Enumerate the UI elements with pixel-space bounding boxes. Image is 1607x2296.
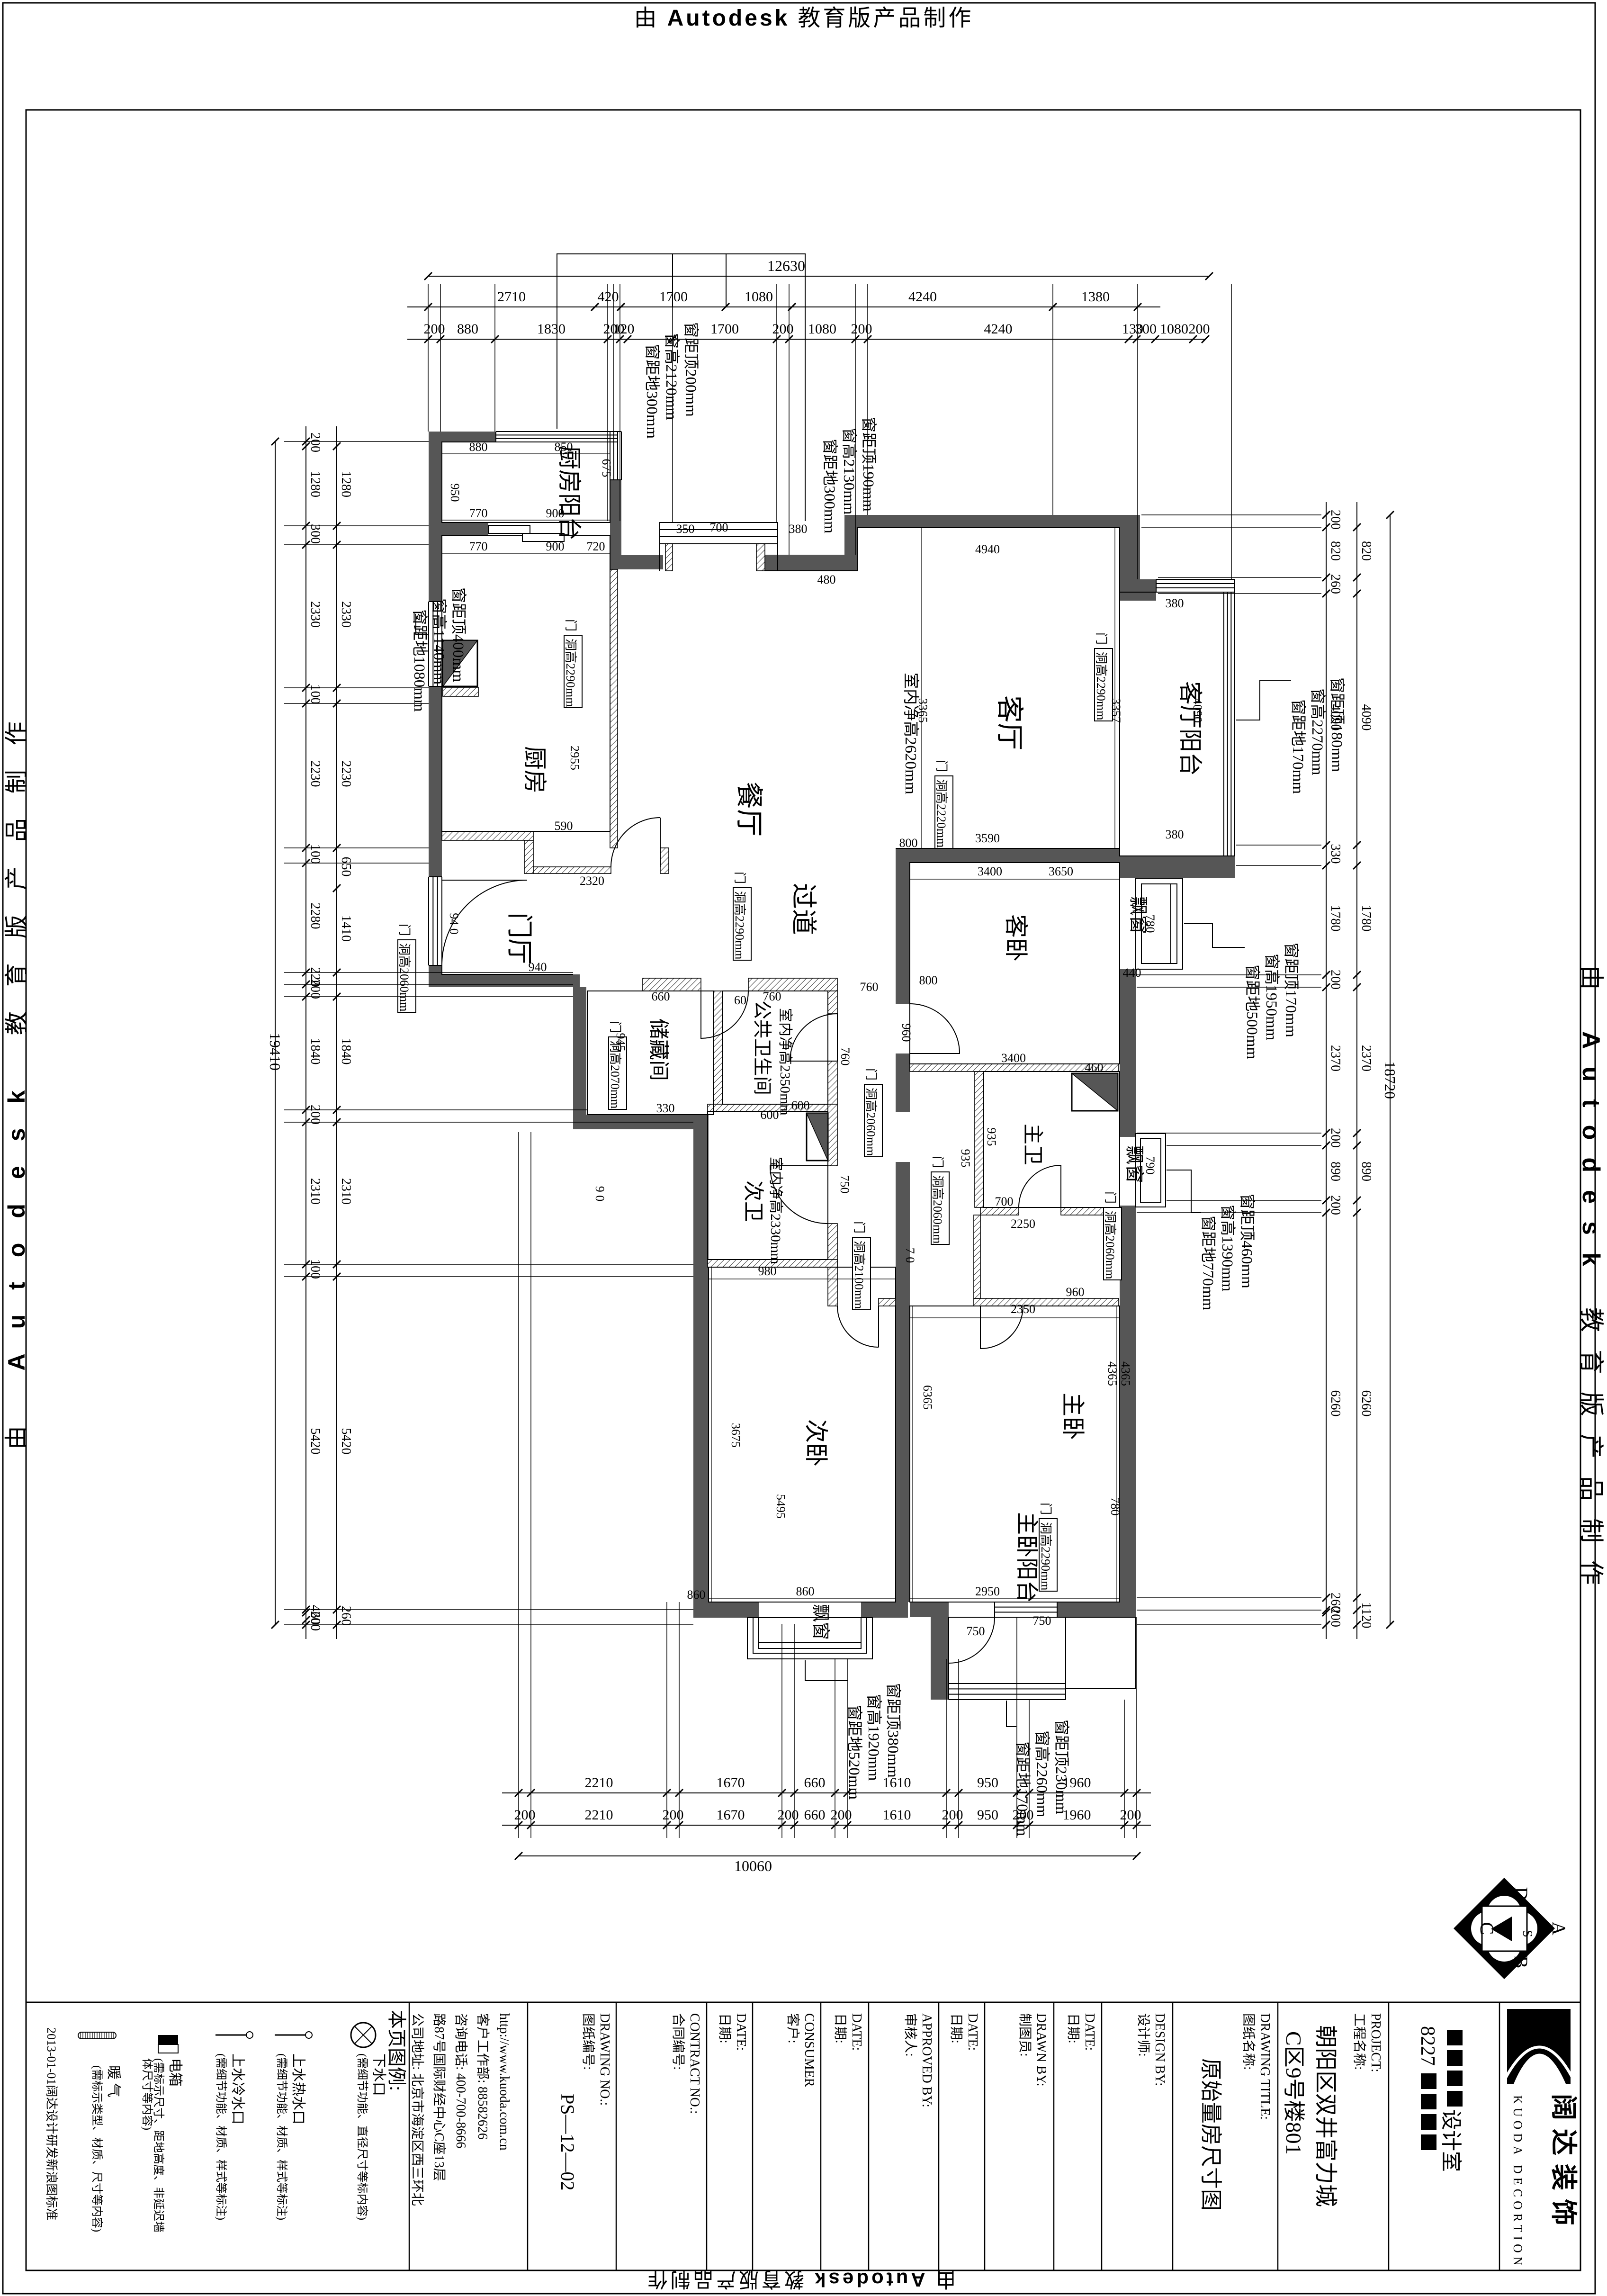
svg-text:120: 120	[613, 321, 635, 337]
svg-text:1410: 1410	[339, 915, 353, 942]
svg-text:100: 100	[308, 684, 323, 704]
svg-text:750: 750	[838, 1175, 852, 1194]
svg-text:945: 945	[614, 1033, 628, 1052]
svg-text:60: 60	[734, 993, 746, 1007]
svg-text:330: 330	[1328, 844, 1343, 864]
svg-text:6260: 6260	[1328, 1390, 1343, 1417]
svg-text:2950: 2950	[975, 1585, 1000, 1598]
svg-text:380: 380	[789, 522, 808, 536]
svg-text:由 Autodesk 教育版产品制作: 由 Autodesk 教育版产品制作	[1577, 965, 1605, 1603]
svg-text:200: 200	[1120, 1807, 1141, 1823]
svg-text:850: 850	[555, 440, 573, 454]
svg-text:2310: 2310	[308, 1178, 323, 1205]
svg-text:300: 300	[1135, 321, 1157, 337]
svg-text:窗距顶230mm: 窗距顶230mm	[1052, 1720, 1070, 1814]
svg-text:(需标示类型、材质、尺寸等内容): (需标示类型、材质、尺寸等内容)	[90, 2065, 103, 2232]
svg-text:窗距顶400mm: 窗距顶400mm	[449, 587, 467, 682]
svg-text:CONTRACT NO.:: CONTRACT NO.:	[687, 2013, 702, 2114]
svg-text:窗距顶460mm: 窗距顶460mm	[1238, 1194, 1256, 1288]
svg-text:窗距地170mm: 窗距地170mm	[1289, 699, 1307, 794]
svg-text:窗高2120mm: 窗高2120mm	[663, 333, 680, 420]
svg-text:1780: 1780	[1328, 905, 1343, 932]
svg-text:820: 820	[1328, 541, 1343, 561]
svg-text:洞高2290mm: 洞高2290mm	[1094, 652, 1108, 720]
svg-text:200: 200	[1328, 510, 1343, 530]
svg-text:阔达装饰: 阔达装饰	[1548, 2094, 1578, 2234]
svg-text:PROJECT:: PROJECT:	[1368, 2013, 1383, 2072]
svg-text:设计室: 设计室	[1439, 2109, 1463, 2172]
svg-text:窗高1950mm: 窗高1950mm	[1263, 954, 1280, 1041]
svg-text:洞高2290mm: 洞高2290mm	[733, 891, 746, 959]
svg-text:主卫: 主卫	[1021, 1124, 1044, 1165]
svg-text:760: 760	[860, 980, 879, 994]
svg-text:DATE:: DATE:	[849, 2013, 864, 2051]
svg-text:760: 760	[838, 1047, 852, 1066]
svg-text:电箱: 电箱	[167, 2058, 183, 2087]
svg-text:客厅阳台: 客厅阳台	[1177, 681, 1203, 776]
svg-text:2370: 2370	[1328, 1045, 1343, 1071]
svg-text:客户工作部: 88582626: 客户工作部: 88582626	[475, 2013, 490, 2140]
svg-text:窗距地770mm: 窗距地770mm	[1199, 1216, 1217, 1310]
svg-text:2210: 2210	[585, 1775, 613, 1791]
svg-text:日期:: 日期:	[833, 2013, 847, 2044]
svg-text:朝阳区双井富力城: 朝阳区双井富力城	[1313, 2025, 1338, 2207]
svg-text:门: 门	[1094, 632, 1108, 645]
svg-text:800: 800	[919, 973, 938, 987]
svg-text:900: 900	[546, 506, 565, 520]
svg-text:2955: 2955	[568, 746, 582, 770]
svg-text:洞高2290mm: 洞高2290mm	[1039, 1522, 1052, 1590]
svg-text:DRAWING NO.:: DRAWING NO.:	[597, 2013, 612, 2106]
svg-text:200: 200	[308, 1105, 323, 1125]
svg-text:2320: 2320	[580, 874, 604, 888]
svg-text:10060: 10060	[734, 1857, 772, 1874]
svg-text:门: 门	[931, 1156, 944, 1168]
svg-text:室内净高2350mm: 室内净高2350mm	[777, 1008, 793, 1116]
svg-text:1380: 1380	[1081, 289, 1110, 305]
svg-text:DATE:: DATE:	[1082, 2013, 1097, 2051]
svg-text:3357: 3357	[1109, 698, 1123, 723]
svg-text:200: 200	[1189, 321, 1210, 337]
svg-text:B: B	[1510, 1956, 1532, 1969]
svg-text:次卫: 次卫	[742, 1180, 765, 1222]
svg-text:洞高2220mm: 洞高2220mm	[934, 779, 948, 847]
svg-text:6260: 6260	[1359, 1390, 1374, 1417]
svg-text:窗距地520mm: 窗距地520mm	[845, 1705, 863, 1800]
svg-text:4240: 4240	[908, 289, 937, 305]
svg-text:935: 935	[959, 1149, 972, 1168]
svg-text:200: 200	[308, 432, 323, 452]
svg-text:750: 750	[1033, 1614, 1051, 1628]
svg-text:960: 960	[1066, 1285, 1085, 1299]
svg-text:门厅: 门厅	[505, 912, 534, 964]
svg-text:窗距地1080mm: 窗距地1080mm	[411, 609, 428, 712]
svg-text:由 Autodesk 教育版产品制作: 由 Autodesk 教育版产品制作	[634, 6, 974, 31]
svg-text:门: 门	[1039, 1503, 1052, 1515]
svg-text:2013-01-01阔达设计研发新浪图标准: 2013-01-01阔达设计研发新浪图标准	[45, 2027, 58, 2220]
svg-text:7 0: 7 0	[903, 1248, 917, 1263]
svg-text:880: 880	[469, 440, 488, 454]
svg-text:1780: 1780	[1359, 905, 1374, 932]
svg-text:1280: 1280	[308, 471, 323, 497]
svg-text:1960: 1960	[1063, 1775, 1091, 1791]
svg-text:1120: 1120	[1359, 1603, 1374, 1629]
svg-text:3400: 3400	[978, 864, 1002, 878]
svg-text:公司地址: 北京市海淀区西三环北: 公司地址: 北京市海淀区西三环北	[410, 2013, 425, 2206]
svg-text:门: 门	[1103, 1191, 1117, 1204]
svg-text:日期:: 日期:	[1066, 2013, 1080, 2044]
svg-text:2370: 2370	[1359, 1045, 1374, 1071]
svg-text:2280: 2280	[308, 903, 323, 929]
svg-text:780: 780	[1108, 1497, 1122, 1516]
svg-text:制图员:: 制图员:	[1017, 2013, 1032, 2057]
svg-text:4365: 4365	[1119, 1361, 1132, 1386]
svg-text:200: 200	[1328, 1128, 1343, 1148]
svg-text:600: 600	[791, 1098, 810, 1112]
svg-text:由 Autodesk 教育版产品制作: 由 Autodesk 教育版产品制作	[3, 697, 30, 1450]
svg-text:上水热水口: 上水热水口	[290, 2053, 306, 2125]
svg-text:门: 门	[852, 1221, 866, 1234]
svg-text:3590: 3590	[975, 831, 1000, 845]
svg-text:DESIGN BY:: DESIGN BY:	[1152, 2013, 1167, 2086]
svg-text:1700: 1700	[710, 321, 739, 337]
svg-text:1080: 1080	[808, 321, 836, 337]
svg-text:图纸名称:: 图纸名称:	[1241, 2013, 1256, 2070]
svg-text:DRAWING TITLE:: DRAWING TITLE:	[1257, 2013, 1272, 2120]
svg-text:940: 940	[529, 960, 547, 974]
svg-text:室内净高2620mm: 室内净高2620mm	[902, 673, 920, 794]
svg-text:KUODA DECORTION: KUODA DECORTION	[1511, 2095, 1525, 2269]
svg-text:窗高2260mm: 窗高2260mm	[1033, 1730, 1050, 1818]
svg-text:审核人:: 审核人:	[903, 2013, 918, 2057]
svg-text:1670: 1670	[717, 1807, 745, 1823]
svg-text:客厅: 客厅	[994, 695, 1025, 750]
svg-text:480: 480	[817, 573, 836, 586]
svg-text:1670: 1670	[717, 1775, 745, 1791]
svg-text:330: 330	[656, 1101, 675, 1115]
svg-text:950: 950	[977, 1807, 998, 1823]
svg-text:(需细节功能、材质、样式等标注): (需细节功能、材质、样式等标注)	[275, 2053, 288, 2220]
svg-text:C区9号楼801: C区9号楼801	[1282, 2031, 1306, 2155]
svg-text:洞高2060mm: 洞高2060mm	[864, 1088, 878, 1156]
svg-text:设计师:: 设计师:	[1136, 2013, 1151, 2057]
svg-text:1610: 1610	[883, 1807, 911, 1823]
svg-text:http://www.kuoda.com.cn: http://www.kuoda.com.cn	[497, 2013, 512, 2151]
svg-text:960: 960	[899, 1024, 913, 1042]
svg-text:客户:: 客户:	[785, 2013, 800, 2044]
svg-text:980: 980	[758, 1264, 777, 1278]
svg-text:门: 门	[864, 1068, 878, 1080]
svg-text:3650: 3650	[1049, 864, 1073, 878]
svg-text:94 0: 94 0	[447, 913, 461, 935]
svg-text:原始量房尺寸图: 原始量房尺寸图	[1199, 2058, 1223, 2211]
svg-text:5495: 5495	[774, 1494, 788, 1519]
svg-text:380: 380	[1166, 596, 1184, 610]
svg-text:门: 门	[397, 924, 411, 936]
svg-text:780: 780	[1143, 915, 1157, 933]
svg-text:窗距顶170mm: 窗距顶170mm	[1282, 943, 1300, 1037]
svg-text:790: 790	[1143, 1156, 1157, 1175]
svg-text:200: 200	[308, 1611, 323, 1631]
svg-text:餐厅: 餐厅	[734, 782, 764, 837]
svg-text:洞高2060mm: 洞高2060mm	[397, 943, 411, 1011]
svg-text:主卧: 主卧	[1059, 1393, 1086, 1440]
svg-text:窗距地300mm: 窗距地300mm	[643, 344, 661, 439]
svg-text:5420: 5420	[308, 1428, 323, 1455]
svg-text:890: 890	[1328, 1162, 1343, 1181]
svg-text:700: 700	[995, 1195, 1014, 1208]
svg-text:860: 860	[687, 1588, 706, 1602]
svg-text:260: 260	[1328, 574, 1343, 594]
svg-text:300: 300	[308, 524, 323, 544]
svg-text:2330: 2330	[308, 601, 323, 628]
svg-text:3675: 3675	[729, 1423, 743, 1448]
svg-text:2210: 2210	[585, 1807, 613, 1823]
svg-text:200: 200	[663, 1807, 684, 1823]
svg-text:CONSUMER: CONSUMER	[802, 2013, 817, 2087]
svg-text:门: 门	[608, 1021, 622, 1033]
svg-text:上水冷水口: 上水冷水口	[230, 2053, 245, 2125]
svg-text:窗高1140mm: 窗高1140mm	[430, 598, 448, 684]
svg-text:窗高1390mm: 窗高1390mm	[1219, 1205, 1236, 1292]
svg-text:860: 860	[796, 1585, 815, 1598]
svg-text:1830: 1830	[537, 321, 566, 337]
svg-text:2310: 2310	[339, 1178, 353, 1205]
svg-text:200: 200	[1013, 1807, 1034, 1823]
svg-text:5420: 5420	[339, 1428, 353, 1455]
svg-text:4940: 4940	[975, 542, 1000, 556]
svg-text:(需细节功能、材质、样式等标注): (需细节功能、材质、样式等标注)	[215, 2053, 227, 2220]
svg-text:600: 600	[761, 1108, 779, 1122]
svg-text:厨房阳台: 厨房阳台	[556, 446, 583, 540]
svg-text:过道: 过道	[789, 883, 818, 935]
svg-text:飘窗: 飘窗	[810, 1604, 830, 1640]
svg-text:飘窗: 飘窗	[1124, 1145, 1145, 1183]
svg-text:12630: 12630	[767, 257, 805, 274]
svg-text:1700: 1700	[659, 289, 688, 305]
svg-text:4090: 4090	[1191, 698, 1204, 723]
svg-text:2350: 2350	[1011, 1302, 1035, 1316]
svg-text:2230: 2230	[339, 761, 353, 787]
svg-text:200: 200	[942, 1807, 963, 1823]
svg-text:窗距地500mm: 窗距地500mm	[1243, 964, 1261, 1059]
svg-text:1610: 1610	[883, 1775, 911, 1791]
svg-text:460: 460	[1085, 1061, 1104, 1074]
svg-text:室内净高2330mm: 室内净高2330mm	[768, 1157, 783, 1264]
svg-text:19410: 19410	[267, 1033, 284, 1071]
svg-text:窗高2270mm: 窗高2270mm	[1309, 688, 1326, 775]
svg-text:窗距顶190mm: 窗距顶190mm	[860, 417, 877, 512]
svg-text:350: 350	[676, 522, 695, 536]
svg-text:公共卫生间: 公共卫生间	[752, 1000, 773, 1095]
svg-text:厨房: 厨房	[521, 746, 548, 793]
svg-text:935: 935	[985, 1128, 998, 1146]
svg-text:260: 260	[339, 1606, 353, 1626]
svg-text:4090: 4090	[1359, 704, 1374, 731]
svg-text:200: 200	[514, 1807, 536, 1823]
svg-text:本页图例:: 本页图例:	[386, 2010, 407, 2091]
svg-text:675: 675	[600, 459, 613, 477]
svg-text:8227: 8227	[1417, 2026, 1438, 2066]
svg-text:下水口: 下水口	[371, 2053, 386, 2096]
svg-text:3365: 3365	[916, 698, 930, 723]
svg-text:日期:: 日期:	[717, 2013, 732, 2044]
svg-text:6365: 6365	[921, 1385, 934, 1410]
svg-text:660: 660	[804, 1775, 826, 1791]
svg-text:APPROVED BY:: APPROVED BY:	[919, 2013, 934, 2107]
svg-text:DRAWN BY:: DRAWN BY:	[1034, 2013, 1049, 2087]
svg-text:750: 750	[967, 1624, 985, 1638]
svg-text:1280: 1280	[339, 471, 353, 497]
svg-text:S: S	[1520, 1930, 1535, 1937]
svg-text:体尺寸等内容): 体尺寸等内容)	[141, 2058, 153, 2130]
svg-text:门: 门	[733, 872, 746, 884]
svg-text:门: 门	[934, 760, 948, 772]
svg-text:700: 700	[710, 521, 728, 534]
svg-text:洞高2060mm: 洞高2060mm	[931, 1175, 944, 1243]
svg-text:950: 950	[448, 484, 462, 502]
svg-text:窗距顶380mm: 窗距顶380mm	[884, 1683, 902, 1778]
svg-text:A: A	[1548, 1922, 1570, 1936]
svg-text:660: 660	[652, 990, 670, 1003]
svg-text:3400: 3400	[1001, 1051, 1026, 1065]
svg-text:DATE:: DATE:	[734, 2013, 748, 2051]
svg-text:1960: 1960	[1063, 1807, 1091, 1823]
svg-text:770: 770	[469, 506, 488, 520]
svg-text:2710: 2710	[497, 289, 526, 305]
svg-text:1840: 1840	[308, 1038, 323, 1065]
svg-text:门: 门	[564, 619, 577, 631]
svg-text:800: 800	[899, 836, 918, 850]
svg-text:4090: 4090	[1328, 704, 1343, 731]
svg-text:4240: 4240	[984, 321, 1013, 337]
svg-text:暖 气: 暖 气	[106, 2065, 121, 2098]
svg-text:日期:: 日期:	[949, 2013, 963, 2044]
svg-text:200: 200	[308, 979, 323, 999]
svg-text:合同编号:: 合同编号:	[671, 2013, 686, 2070]
svg-text:洞高2060mm: 洞高2060mm	[1103, 1211, 1117, 1279]
svg-text:770: 770	[469, 540, 488, 553]
svg-text:主卧阳台: 主卧阳台	[1014, 1512, 1039, 1603]
svg-text:窗距顶200mm: 窗距顶200mm	[682, 322, 700, 417]
svg-text:660: 660	[804, 1807, 826, 1823]
svg-text:420: 420	[598, 289, 619, 305]
svg-text:客卧: 客卧	[1003, 914, 1029, 962]
svg-text:DATE:: DATE:	[965, 2013, 980, 2051]
svg-text:4365: 4365	[1105, 1361, 1119, 1386]
svg-text:洞高2100mm: 洞高2100mm	[852, 1241, 866, 1309]
svg-text:200: 200	[831, 1807, 852, 1823]
svg-text:1840: 1840	[339, 1038, 353, 1065]
svg-text:路87号国际财经中心C座13层: 路87号国际财经中心C座13层	[431, 2013, 447, 2181]
svg-text:储藏间: 储藏间	[647, 1018, 670, 1081]
svg-text:200: 200	[1328, 1195, 1343, 1215]
svg-text:820: 820	[1359, 541, 1374, 561]
svg-text:图纸编号:: 图纸编号:	[581, 2013, 596, 2070]
svg-text:2230: 2230	[308, 761, 323, 787]
svg-text:440: 440	[1123, 966, 1141, 980]
svg-text:720: 720	[587, 540, 605, 553]
svg-text:100: 100	[308, 844, 323, 864]
svg-text:2330: 2330	[339, 601, 353, 628]
svg-text:200: 200	[424, 321, 445, 337]
svg-text:200: 200	[778, 1807, 799, 1823]
svg-text:由 Autodesk 教育版产品制作: 由 Autodesk 教育版产品制作	[645, 2268, 956, 2291]
svg-text:1080: 1080	[745, 289, 773, 305]
svg-text:咨询电话: 400-700-8666: 咨询电话: 400-700-8666	[453, 2013, 468, 2148]
svg-text:880: 880	[457, 321, 478, 337]
svg-text:380: 380	[1166, 828, 1184, 841]
svg-text:(需标示尺寸、距地高度、非延迟墙: (需标示尺寸、距地高度、非延迟墙	[152, 2058, 165, 2233]
svg-text:760: 760	[763, 990, 781, 1003]
svg-text:900: 900	[546, 540, 565, 553]
svg-text:200: 200	[1328, 970, 1343, 990]
svg-text:100: 100	[308, 1259, 323, 1279]
svg-text:PS—12—02: PS—12—02	[557, 2094, 578, 2191]
svg-text:次卧: 次卧	[803, 1419, 829, 1467]
svg-text:9 0: 9 0	[593, 1186, 607, 1202]
svg-text:18720: 18720	[1382, 1061, 1399, 1099]
svg-text:(需细节功能、直径尺寸等标内容): (需细节功能、直径尺寸等标内容)	[356, 2053, 368, 2220]
svg-text:2250: 2250	[1011, 1217, 1035, 1231]
svg-text:工程名称:: 工程名称:	[1352, 2013, 1367, 2070]
svg-text:890: 890	[1359, 1162, 1374, 1181]
svg-text:D: D	[1510, 1887, 1532, 1901]
svg-text:200: 200	[772, 321, 794, 337]
svg-text:200: 200	[851, 321, 872, 337]
svg-text:1080: 1080	[1160, 321, 1188, 337]
svg-text:650: 650	[339, 857, 353, 877]
svg-text:窗高1920mm: 窗高1920mm	[865, 1694, 882, 1781]
svg-text:洞高2290mm: 洞高2290mm	[564, 639, 577, 707]
svg-text:590: 590	[555, 819, 573, 833]
svg-text:200: 200	[1328, 1607, 1343, 1627]
svg-text:950: 950	[977, 1775, 998, 1791]
svg-text:窗距地300mm: 窗距地300mm	[821, 439, 838, 533]
